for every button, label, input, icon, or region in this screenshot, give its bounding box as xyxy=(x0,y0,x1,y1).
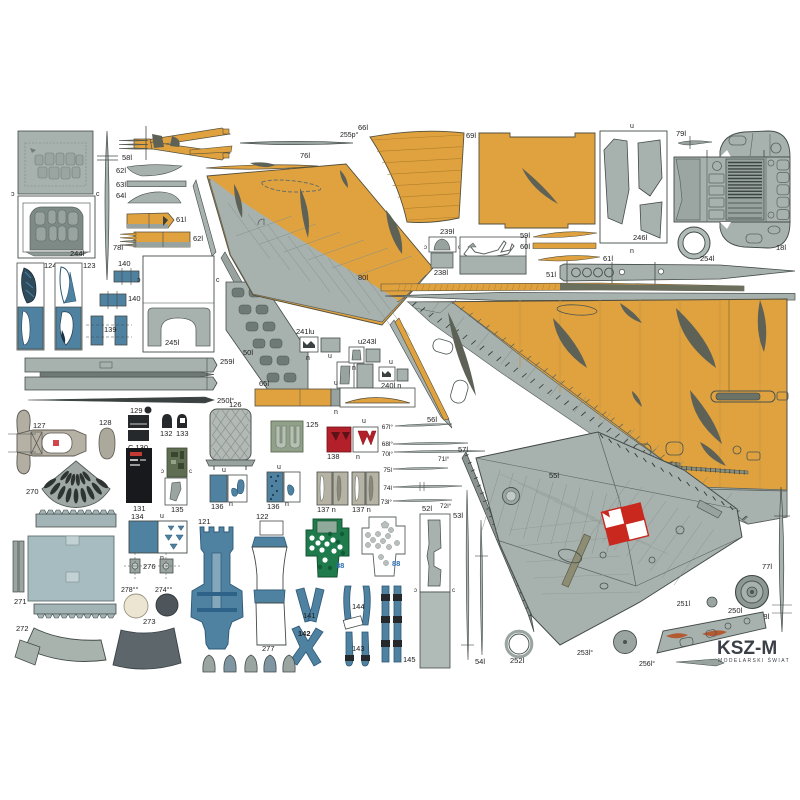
svg-text:136: 136 xyxy=(211,502,224,511)
svg-text:132: 132 xyxy=(160,429,173,438)
svg-text:259l: 259l xyxy=(220,357,235,366)
svg-text:ɔ: ɔ xyxy=(11,191,15,198)
svg-text:58l: 58l xyxy=(122,153,132,162)
svg-text:c: c xyxy=(189,469,192,475)
svg-text:135: 135 xyxy=(171,505,184,514)
svg-text:68l°: 68l° xyxy=(382,440,394,448)
svg-text:136: 136 xyxy=(267,502,280,511)
svg-text:244l: 244l xyxy=(70,249,85,258)
svg-text:ɔ: ɔ xyxy=(424,245,427,251)
svg-text:56l: 56l xyxy=(427,415,437,424)
svg-text:144: 144 xyxy=(352,602,365,611)
svg-text:MODELARSKI ŚWIAT: MODELARSKI ŚWIAT xyxy=(718,656,790,664)
svg-text:139: 139 xyxy=(104,325,117,334)
svg-text:KSZ-M: KSZ-M xyxy=(717,638,777,659)
svg-text:277: 277 xyxy=(262,644,275,653)
svg-text:270: 270 xyxy=(26,487,39,496)
svg-text:52l: 52l xyxy=(422,504,432,513)
svg-text:75l: 75l xyxy=(383,467,392,474)
svg-text:70l°: 70l° xyxy=(382,450,394,458)
svg-text:76l: 76l xyxy=(300,151,310,160)
svg-text:n: n xyxy=(229,501,233,508)
svg-text:250l: 250l xyxy=(728,606,743,615)
svg-text:55l: 55l xyxy=(549,471,559,480)
svg-text:67l°: 67l° xyxy=(382,423,394,431)
svg-text:63l: 63l xyxy=(116,180,126,189)
svg-text:252l: 252l xyxy=(510,656,525,665)
svg-text:256l°: 256l° xyxy=(639,660,655,668)
svg-text:80l: 80l xyxy=(358,273,368,282)
svg-text:n: n xyxy=(306,355,310,362)
svg-text:143: 143 xyxy=(352,644,365,653)
svg-text:73l°: 73l° xyxy=(381,498,393,506)
svg-text:133: 133 xyxy=(176,429,189,438)
svg-text:18l: 18l xyxy=(776,243,786,252)
svg-text:88: 88 xyxy=(392,559,400,568)
svg-text:62l: 62l xyxy=(193,234,203,243)
svg-text:239l: 239l xyxy=(440,227,455,236)
svg-text:238l: 238l xyxy=(434,268,449,277)
svg-text:142: 142 xyxy=(298,629,311,638)
svg-text:274°°: 274°° xyxy=(155,586,172,594)
svg-text:u: u xyxy=(362,418,366,425)
svg-text:n: n xyxy=(356,454,360,461)
svg-text:140: 140 xyxy=(118,259,131,268)
svg-text:ɔ: ɔ xyxy=(161,469,164,475)
svg-text:64l: 64l xyxy=(116,191,126,200)
svg-text:276: 276 xyxy=(143,562,156,571)
svg-text:246l: 246l xyxy=(633,233,648,242)
svg-text:n: n xyxy=(334,409,338,416)
svg-text:273: 273 xyxy=(143,617,156,626)
svg-text:255p°: 255p° xyxy=(340,131,359,139)
svg-text:62l: 62l xyxy=(116,166,126,175)
svg-text:u: u xyxy=(277,464,281,471)
svg-text:78l: 78l xyxy=(113,243,123,252)
svg-text:59l: 59l xyxy=(520,231,530,240)
svg-text:u: u xyxy=(222,467,226,474)
svg-text:253l°: 253l° xyxy=(577,649,593,657)
svg-text:121: 121 xyxy=(198,517,211,526)
svg-text:71l°: 71l° xyxy=(438,455,450,463)
svg-text:126: 126 xyxy=(229,400,242,409)
svg-text:125: 125 xyxy=(306,420,319,429)
svg-text:u243l: u243l xyxy=(358,337,377,346)
svg-text:66l: 66l xyxy=(358,123,368,132)
svg-text:n: n xyxy=(630,248,634,255)
svg-text:272: 272 xyxy=(16,624,29,633)
svg-text:u: u xyxy=(389,359,393,366)
svg-text:69l: 69l xyxy=(466,131,476,140)
svg-text:254l: 254l xyxy=(700,254,715,263)
svg-text:140: 140 xyxy=(128,294,141,303)
svg-text:n: n xyxy=(352,365,356,372)
svg-text:145: 145 xyxy=(403,655,416,664)
svg-text:ɔ: ɔ xyxy=(414,588,417,594)
svg-text:54l: 54l xyxy=(475,657,485,666)
svg-text:137 n: 137 n xyxy=(317,505,336,514)
svg-text:278°°: 278°° xyxy=(121,586,138,594)
svg-text:51l: 51l xyxy=(546,270,556,279)
svg-text:u: u xyxy=(328,353,332,360)
svg-text:c: c xyxy=(96,191,100,198)
svg-text:251l: 251l xyxy=(677,601,691,608)
svg-text:141: 141 xyxy=(303,611,316,620)
svg-text:57l: 57l xyxy=(458,445,468,454)
svg-text:72l°: 72l° xyxy=(440,502,452,510)
svg-text:128: 128 xyxy=(99,418,112,427)
svg-text:241lu: 241lu xyxy=(296,327,314,336)
svg-text:u: u xyxy=(160,513,164,520)
svg-text:65l: 65l xyxy=(259,379,269,388)
svg-text:74l: 74l xyxy=(383,485,392,492)
svg-text:245l: 245l xyxy=(165,338,180,347)
svg-text:134: 134 xyxy=(131,512,144,521)
svg-text:u: u xyxy=(334,380,338,387)
svg-text:n: n xyxy=(285,501,289,508)
svg-text:123: 123 xyxy=(83,261,96,270)
svg-text:61l: 61l xyxy=(603,254,613,263)
svg-text:88: 88 xyxy=(336,561,344,570)
svg-text:61l: 61l xyxy=(176,215,186,224)
svg-text:u: u xyxy=(630,123,634,130)
svg-text:ɔ: ɔ xyxy=(137,277,141,284)
svg-text:c: c xyxy=(216,277,220,284)
svg-text:53l: 53l xyxy=(453,511,463,520)
svg-text:138: 138 xyxy=(327,452,340,461)
svg-text:271: 271 xyxy=(14,597,27,606)
svg-text:60l: 60l xyxy=(520,242,530,251)
svg-text:79l: 79l xyxy=(676,129,686,138)
svg-text:129: 129 xyxy=(130,406,143,415)
svg-text:122: 122 xyxy=(256,512,269,521)
svg-text:50l: 50l xyxy=(243,348,253,357)
svg-text:127: 127 xyxy=(33,421,46,430)
svg-text:c: c xyxy=(452,588,455,594)
svg-text:77l: 77l xyxy=(762,562,772,571)
svg-text:137 n: 137 n xyxy=(352,505,371,514)
